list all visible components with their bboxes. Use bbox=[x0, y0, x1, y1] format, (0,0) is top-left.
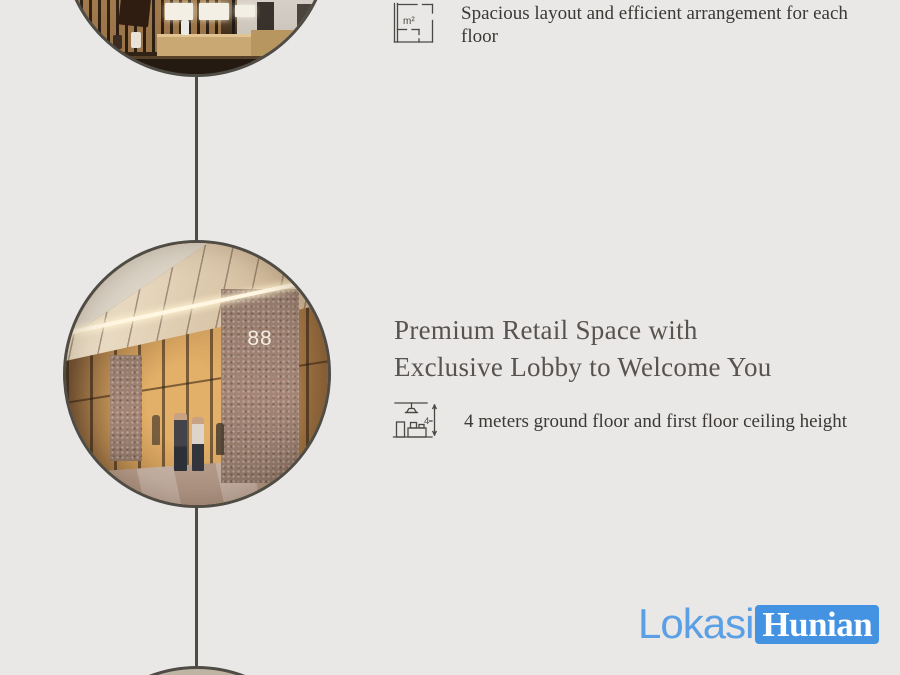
next-photo-backdrop bbox=[66, 669, 328, 675]
reception-counter bbox=[157, 34, 253, 56]
section-title-line1: Premium Retail Space with bbox=[394, 312, 772, 349]
next-photo-circle bbox=[63, 666, 331, 675]
lobby-floor bbox=[65, 56, 330, 77]
timeline-connector-top bbox=[195, 74, 198, 244]
area-feature-bullet: m² Spacious layout and efficient arrange… bbox=[392, 1, 861, 48]
ceiling-height-icon: 4 bbox=[392, 398, 436, 442]
height-icon-label: 4 bbox=[424, 416, 429, 427]
section-title: Premium Retail Space with Exclusive Lobb… bbox=[394, 312, 772, 386]
reception-counter bbox=[251, 30, 311, 58]
ceiling-light-panel bbox=[165, 3, 193, 20]
person-figure bbox=[113, 35, 122, 49]
entrance-photo-circle: 88 bbox=[63, 240, 331, 508]
height-feature-bullet: 4 4 meters ground floor and first floor … bbox=[392, 398, 884, 442]
ceiling-light-panel bbox=[199, 3, 229, 20]
lobby-photo-circle bbox=[62, 0, 330, 77]
timeline-connector-bottom bbox=[195, 504, 198, 670]
area-feature-text: Spacious layout and efficient arrangemen… bbox=[461, 2, 861, 48]
floorplan-area-icon: m² bbox=[392, 1, 436, 45]
person-figure bbox=[181, 20, 189, 35]
slide-background: 88 m² bbox=[0, 0, 900, 675]
pendant-lamp bbox=[118, 0, 152, 27]
brand-logo: Lokasi Hunian bbox=[638, 603, 879, 645]
logo-hunian-text: Hunian bbox=[762, 605, 872, 644]
ceiling-light-panel bbox=[235, 5, 255, 17]
photo-vignette bbox=[66, 243, 328, 505]
logo-lokasi-text: Lokasi bbox=[638, 603, 753, 645]
logo-hunian-badge: Hunian bbox=[755, 605, 879, 644]
person-figure bbox=[131, 32, 141, 48]
section-title-line2: Exclusive Lobby to Welcome You bbox=[394, 349, 772, 386]
area-icon-label: m² bbox=[403, 16, 415, 27]
height-feature-text: 4 meters ground floor and first floor ce… bbox=[464, 410, 884, 433]
